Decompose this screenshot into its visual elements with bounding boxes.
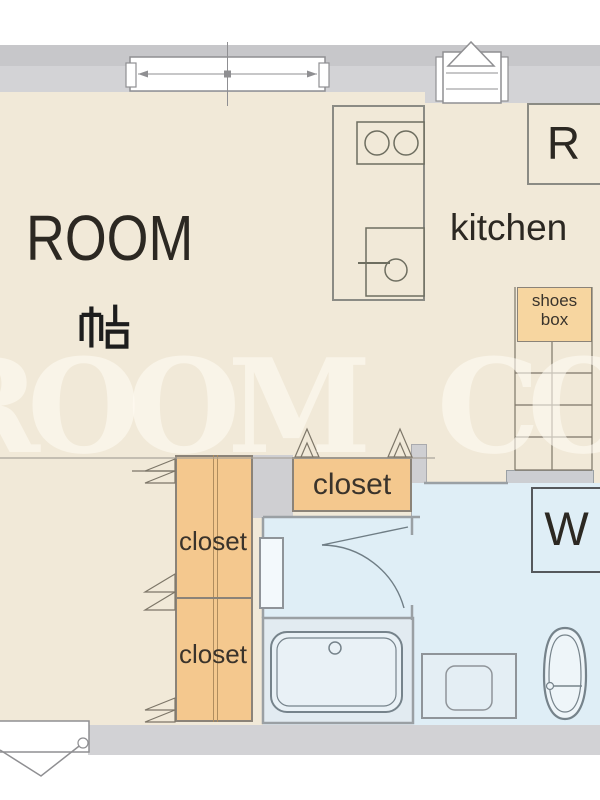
- kitchen-label: kitchen: [450, 209, 567, 246]
- floor-plan: ROOM CORP: [0, 0, 600, 800]
- shoes-box-line1: shoes: [517, 292, 592, 311]
- refrigerator-label: R: [527, 120, 600, 166]
- closet-left-bottom-label: closet: [173, 641, 253, 667]
- closet-hall-label: closet: [292, 470, 412, 500]
- washer-label: W: [531, 505, 600, 552]
- closet-left-top-label: closet: [173, 528, 253, 554]
- room-size-label: 帖: [76, 298, 132, 356]
- room-label: ROOM: [26, 206, 193, 270]
- tatami-glyph: [76, 298, 132, 356]
- shoes-box-line2: box: [517, 311, 592, 330]
- labels-layer: ROOM 帖 kitchen R W shoes box closet clos…: [0, 0, 600, 800]
- shoes-box-label: shoes box: [517, 292, 592, 329]
